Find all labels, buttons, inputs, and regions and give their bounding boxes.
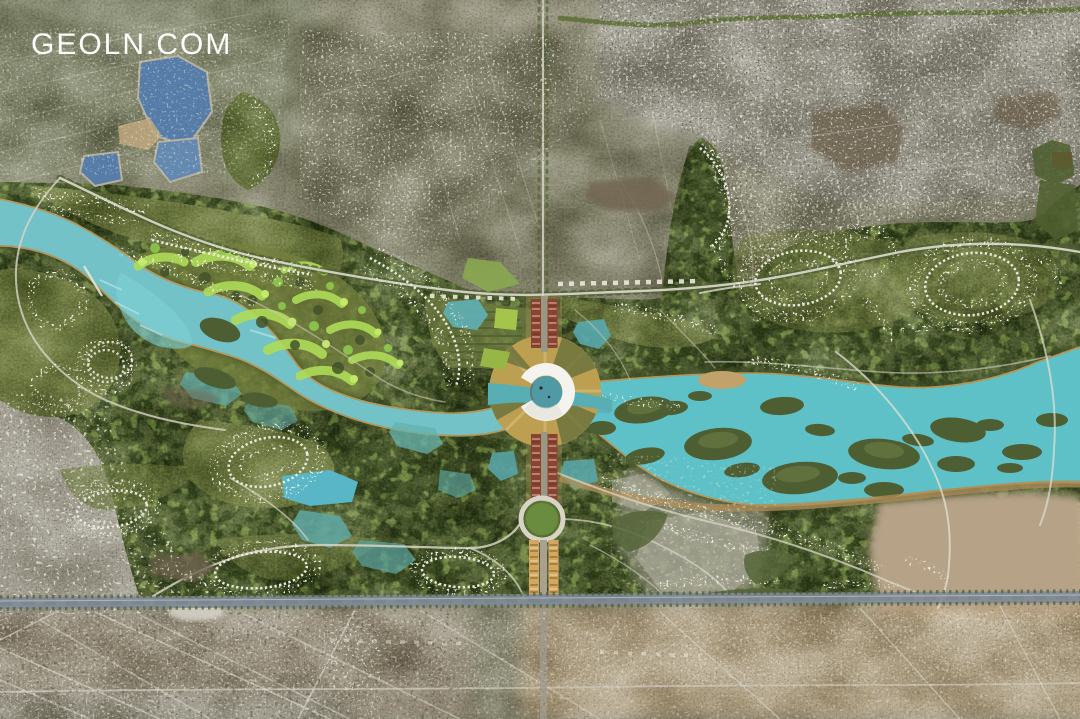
svg-text:GEOLN.COM: GEOLN.COM xyxy=(31,28,232,61)
